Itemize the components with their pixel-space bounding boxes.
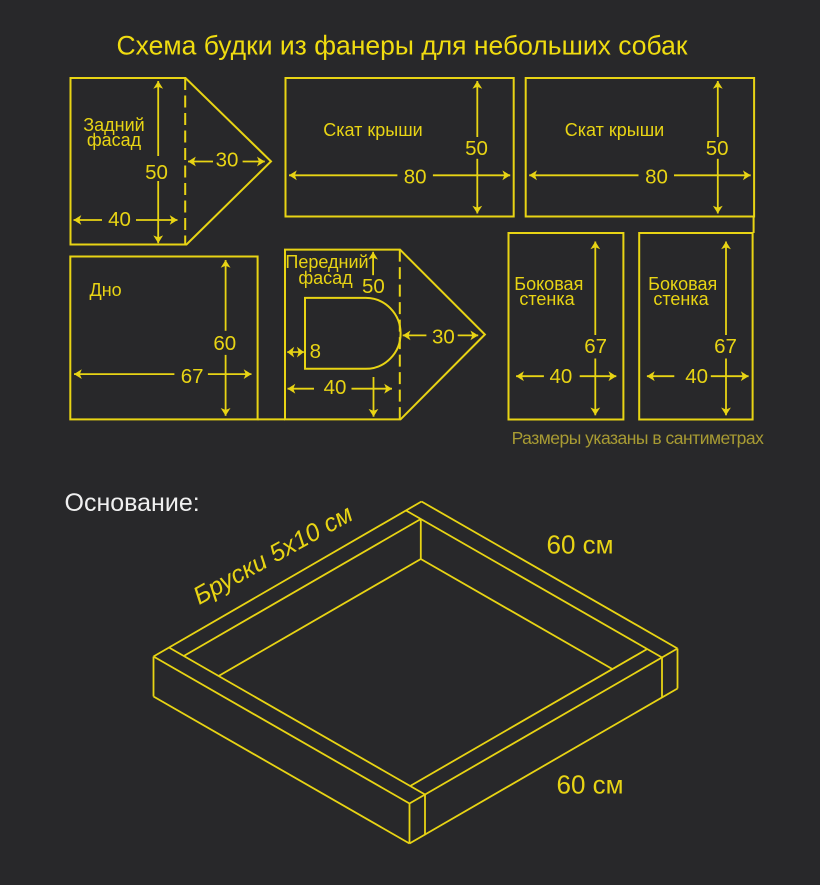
svg-text:60: 60	[213, 332, 236, 355]
svg-text:67: 67	[181, 365, 204, 388]
svg-text:60 см: 60 см	[546, 530, 613, 560]
svg-text:50: 50	[706, 137, 729, 160]
svg-text:фасад: фасад	[87, 130, 142, 150]
svg-text:стенка: стенка	[519, 289, 575, 309]
svg-text:8: 8	[310, 340, 321, 363]
svg-text:Основание:: Основание:	[65, 489, 200, 517]
svg-text:67: 67	[584, 335, 607, 358]
svg-text:67: 67	[714, 335, 737, 358]
svg-text:80: 80	[404, 166, 427, 189]
svg-text:Скат крыши: Скат крыши	[323, 120, 422, 140]
svg-text:30: 30	[432, 326, 455, 349]
svg-text:фасад: фасад	[298, 268, 353, 288]
svg-text:40: 40	[685, 365, 708, 388]
svg-text:стенка: стенка	[653, 289, 709, 309]
svg-text:Схема будки из фанеры для небо: Схема будки из фанеры для небольших соба…	[117, 31, 688, 61]
svg-text:Скат крыши: Скат крыши	[565, 120, 664, 140]
svg-text:50: 50	[362, 275, 385, 298]
svg-text:50: 50	[465, 137, 488, 160]
svg-text:Дно: Дно	[90, 280, 122, 300]
svg-text:40: 40	[549, 365, 572, 388]
svg-text:50: 50	[145, 161, 168, 184]
svg-text:80: 80	[645, 166, 668, 189]
svg-text:60 см: 60 см	[556, 770, 623, 800]
svg-text:40: 40	[108, 208, 131, 231]
svg-text:Размеры указаны в сантиметрах: Размеры указаны в сантиметрах	[512, 428, 765, 448]
svg-text:40: 40	[324, 376, 347, 399]
svg-text:30: 30	[216, 149, 239, 172]
